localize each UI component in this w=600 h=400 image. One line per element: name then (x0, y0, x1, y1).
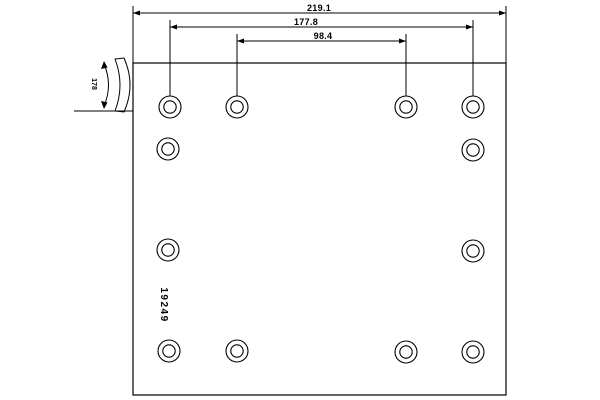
rivet-hole-outer (395, 96, 417, 118)
rivet-hole-inner (231, 345, 243, 357)
side-profile-dimension-arc (104, 64, 109, 106)
rivet-hole-outer (157, 138, 179, 160)
rivet-hole-outer (226, 96, 248, 118)
side-profile-arrow (101, 61, 108, 69)
rivet-hole-inner (162, 143, 174, 155)
rivet-hole-inner (467, 101, 479, 113)
part-number-label: 19249 (158, 287, 169, 322)
rivet-hole-outer (462, 240, 484, 262)
rivet-hole-inner (467, 245, 479, 257)
rivet-hole-outer (462, 96, 484, 118)
rivet-hole-outer (395, 341, 417, 363)
dimension-arrow-left (237, 39, 244, 44)
rivet-hole-inner (400, 101, 412, 113)
dimension-arrow-right (399, 39, 406, 44)
dimension-arrow-right (466, 25, 473, 30)
rivet-hole-inner (467, 346, 479, 358)
rivet-hole-outer (462, 139, 484, 161)
rivet-hole-inner (163, 345, 175, 357)
side-profile-label: 178 (90, 78, 97, 90)
dimension-arrow-right (499, 11, 506, 16)
rivet-hole-outer (226, 340, 248, 362)
technical-drawing-canvas: 219.1177.898.419249178 (0, 0, 600, 400)
rivet-hole-inner (164, 101, 176, 113)
part-outline (133, 63, 506, 395)
dimension-label: 177.8 (294, 17, 318, 27)
side-profile-band (115, 58, 130, 112)
rivet-hole-outer (157, 239, 179, 261)
brake-lining-drawing: 219.1177.898.419249178 (0, 0, 600, 400)
dimension-arrow-left (170, 25, 177, 30)
rivet-hole-outer (158, 340, 180, 362)
dimension-label: 98.4 (314, 31, 333, 41)
side-profile-arrow (101, 101, 108, 109)
rivet-hole-inner (231, 101, 243, 113)
rivet-hole-outer (462, 341, 484, 363)
rivet-hole-inner (162, 244, 174, 256)
rivet-hole-inner (467, 144, 479, 156)
rivet-hole-outer (159, 96, 181, 118)
dimension-label: 219.1 (307, 3, 331, 13)
rivet-hole-inner (400, 346, 412, 358)
dimension-arrow-left (133, 11, 140, 16)
